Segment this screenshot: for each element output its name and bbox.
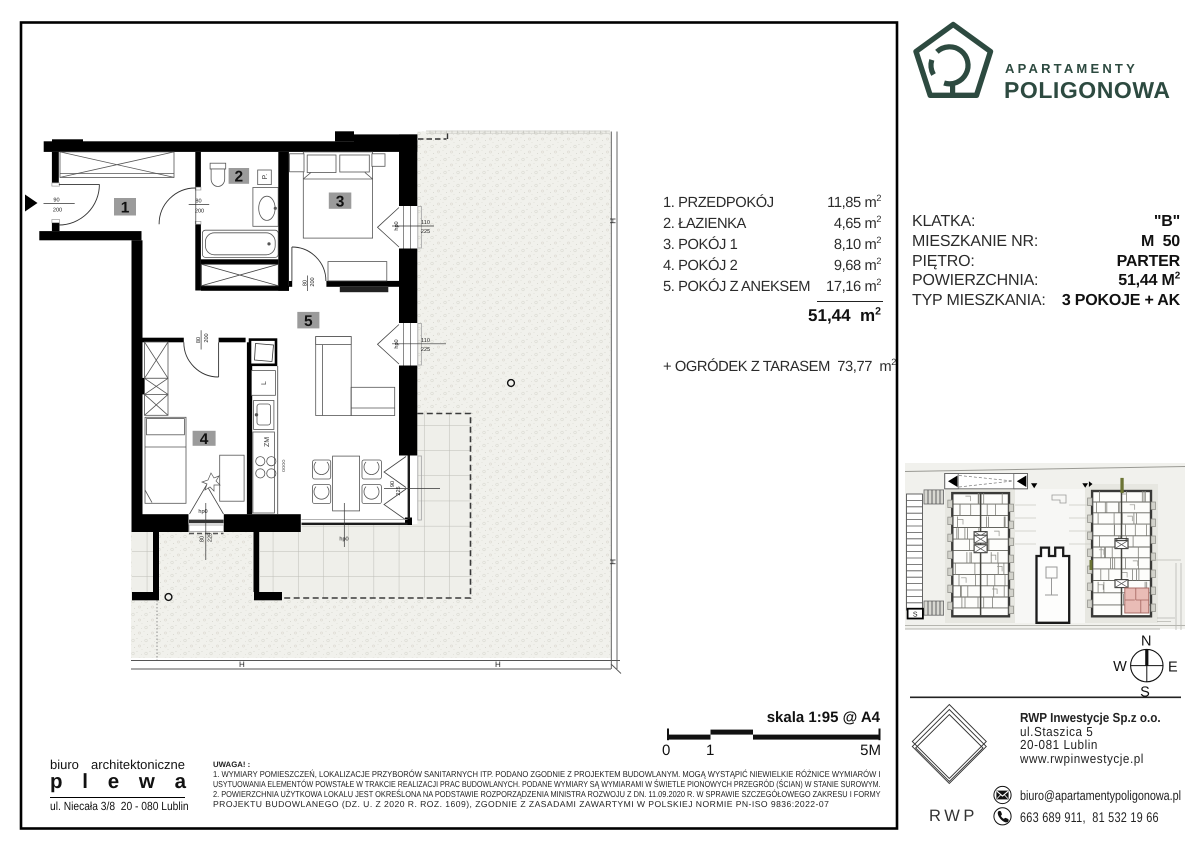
svg-text:S: S [913, 612, 918, 619]
